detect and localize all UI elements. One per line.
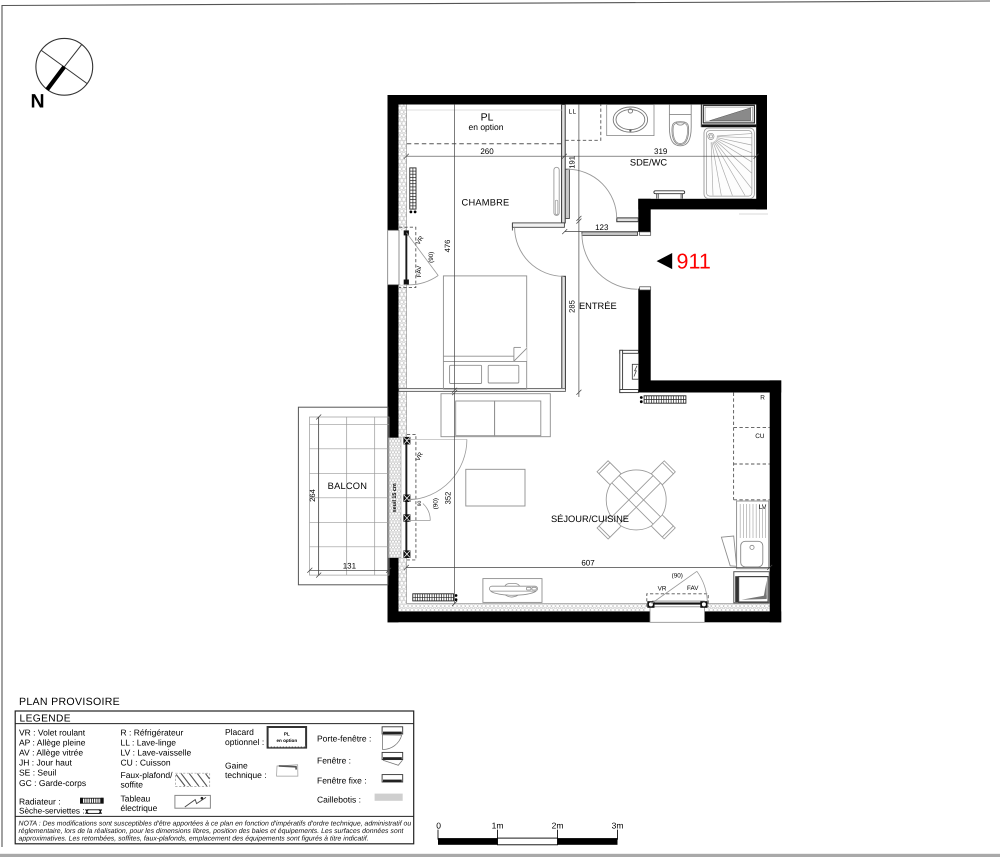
svg-text:VR: VR (658, 586, 667, 593)
svg-text:NOTA : Des modifications sont: NOTA : Des modifications sont susceptibl… (19, 819, 412, 827)
svg-text:technique :: technique : (225, 770, 267, 780)
svg-text:123: 123 (595, 223, 609, 232)
svg-text:131: 131 (343, 561, 357, 570)
svg-text:PL: PL (284, 732, 290, 737)
svg-text:FAV: FAV (687, 585, 699, 592)
svg-text:LV: LV (759, 504, 767, 511)
svg-text:Fenêtre :: Fenêtre : (317, 756, 351, 766)
svg-text:607: 607 (581, 558, 595, 567)
svg-text:LL : Lave-linge: LL : Lave-linge (121, 737, 177, 747)
svg-text:AP : Allège pleine: AP : Allège pleine (19, 737, 86, 747)
svg-text:soffite: soffite (121, 780, 144, 790)
svg-text:911: 911 (677, 250, 711, 274)
svg-text:FAV: FAV (416, 265, 423, 277)
svg-text:LV : Lave-vaisselle: LV : Lave-vaisselle (121, 748, 192, 758)
svg-text:319: 319 (654, 147, 668, 156)
svg-text:(90): (90) (432, 498, 439, 509)
svg-text:1m: 1m (492, 821, 504, 831)
svg-text:Placard: Placard (225, 727, 254, 737)
svg-text:90: 90 (417, 501, 423, 507)
svg-text:PLAN PROVISOIRE: PLAN PROVISOIRE (19, 696, 120, 708)
svg-text:Fenêtre fixe :: Fenêtre fixe : (317, 775, 367, 785)
svg-text:0: 0 (436, 821, 441, 831)
svg-text:(90): (90) (428, 252, 435, 263)
svg-text:191: 191 (568, 156, 577, 169)
svg-text:Radiateur :: Radiateur : (19, 796, 61, 806)
svg-text:réglementaire, lors de la réal: réglementaire, lors de la réalisation, p… (19, 827, 405, 835)
svg-text:Tableau: Tableau (121, 794, 151, 804)
svg-text:N: N (30, 91, 44, 113)
svg-text:R: R (760, 394, 765, 401)
svg-text:3m: 3m (612, 821, 624, 831)
svg-text:476: 476 (443, 240, 452, 253)
svg-text:(90): (90) (672, 573, 683, 580)
svg-text:SDE/WC: SDE/WC (630, 158, 667, 168)
svg-text:AV : Allège vitrée: AV : Allège vitrée (19, 748, 83, 758)
svg-text:285: 285 (568, 300, 577, 313)
svg-text:CU: CU (755, 433, 765, 440)
svg-text:seuil 15 cm: seuil 15 cm (392, 483, 398, 512)
svg-text:JH : Jour haut: JH : Jour haut (19, 758, 73, 768)
svg-text:260: 260 (480, 147, 494, 156)
svg-text:en option: en option (276, 738, 297, 743)
svg-text:SE : Seuil: SE : Seuil (19, 768, 56, 778)
svg-text:SÉJOUR/CUISINE: SÉJOUR/CUISINE (551, 513, 629, 524)
svg-text:ENTRÉE: ENTRÉE (579, 300, 617, 311)
svg-text:Sèche-serviettes :: Sèche-serviettes : (19, 807, 85, 816)
svg-text:R : Réfrigérateur: R : Réfrigérateur (121, 727, 184, 737)
svg-text:352: 352 (444, 492, 453, 505)
svg-text:approximatives. Les retombées,: approximatives. Les retombées, soffites,… (19, 835, 369, 843)
svg-text:BALCON: BALCON (328, 481, 367, 491)
svg-text:Gaine: Gaine (225, 760, 248, 770)
svg-text:Porte-fenêtre :: Porte-fenêtre : (317, 734, 371, 744)
svg-text:optionnel :: optionnel : (225, 737, 264, 747)
svg-text:LEGENDE: LEGENDE (20, 714, 72, 725)
svg-text:CHAMBRE: CHAMBRE (462, 198, 510, 208)
svg-text:LL: LL (569, 109, 577, 116)
svg-text:GC : Garde-corps: GC : Garde-corps (19, 778, 86, 788)
svg-text:Faux-plafond/: Faux-plafond/ (121, 770, 174, 780)
svg-text:en option: en option (469, 122, 504, 132)
svg-text:électrique: électrique (121, 803, 158, 813)
svg-text:CU : Cuisson: CU : Cuisson (121, 758, 171, 768)
svg-text:Caillebotis :: Caillebotis : (317, 794, 361, 804)
svg-text:2m: 2m (552, 821, 564, 831)
svg-text:264: 264 (308, 489, 317, 502)
svg-text:VR : Volet roulant: VR : Volet roulant (19, 727, 86, 737)
